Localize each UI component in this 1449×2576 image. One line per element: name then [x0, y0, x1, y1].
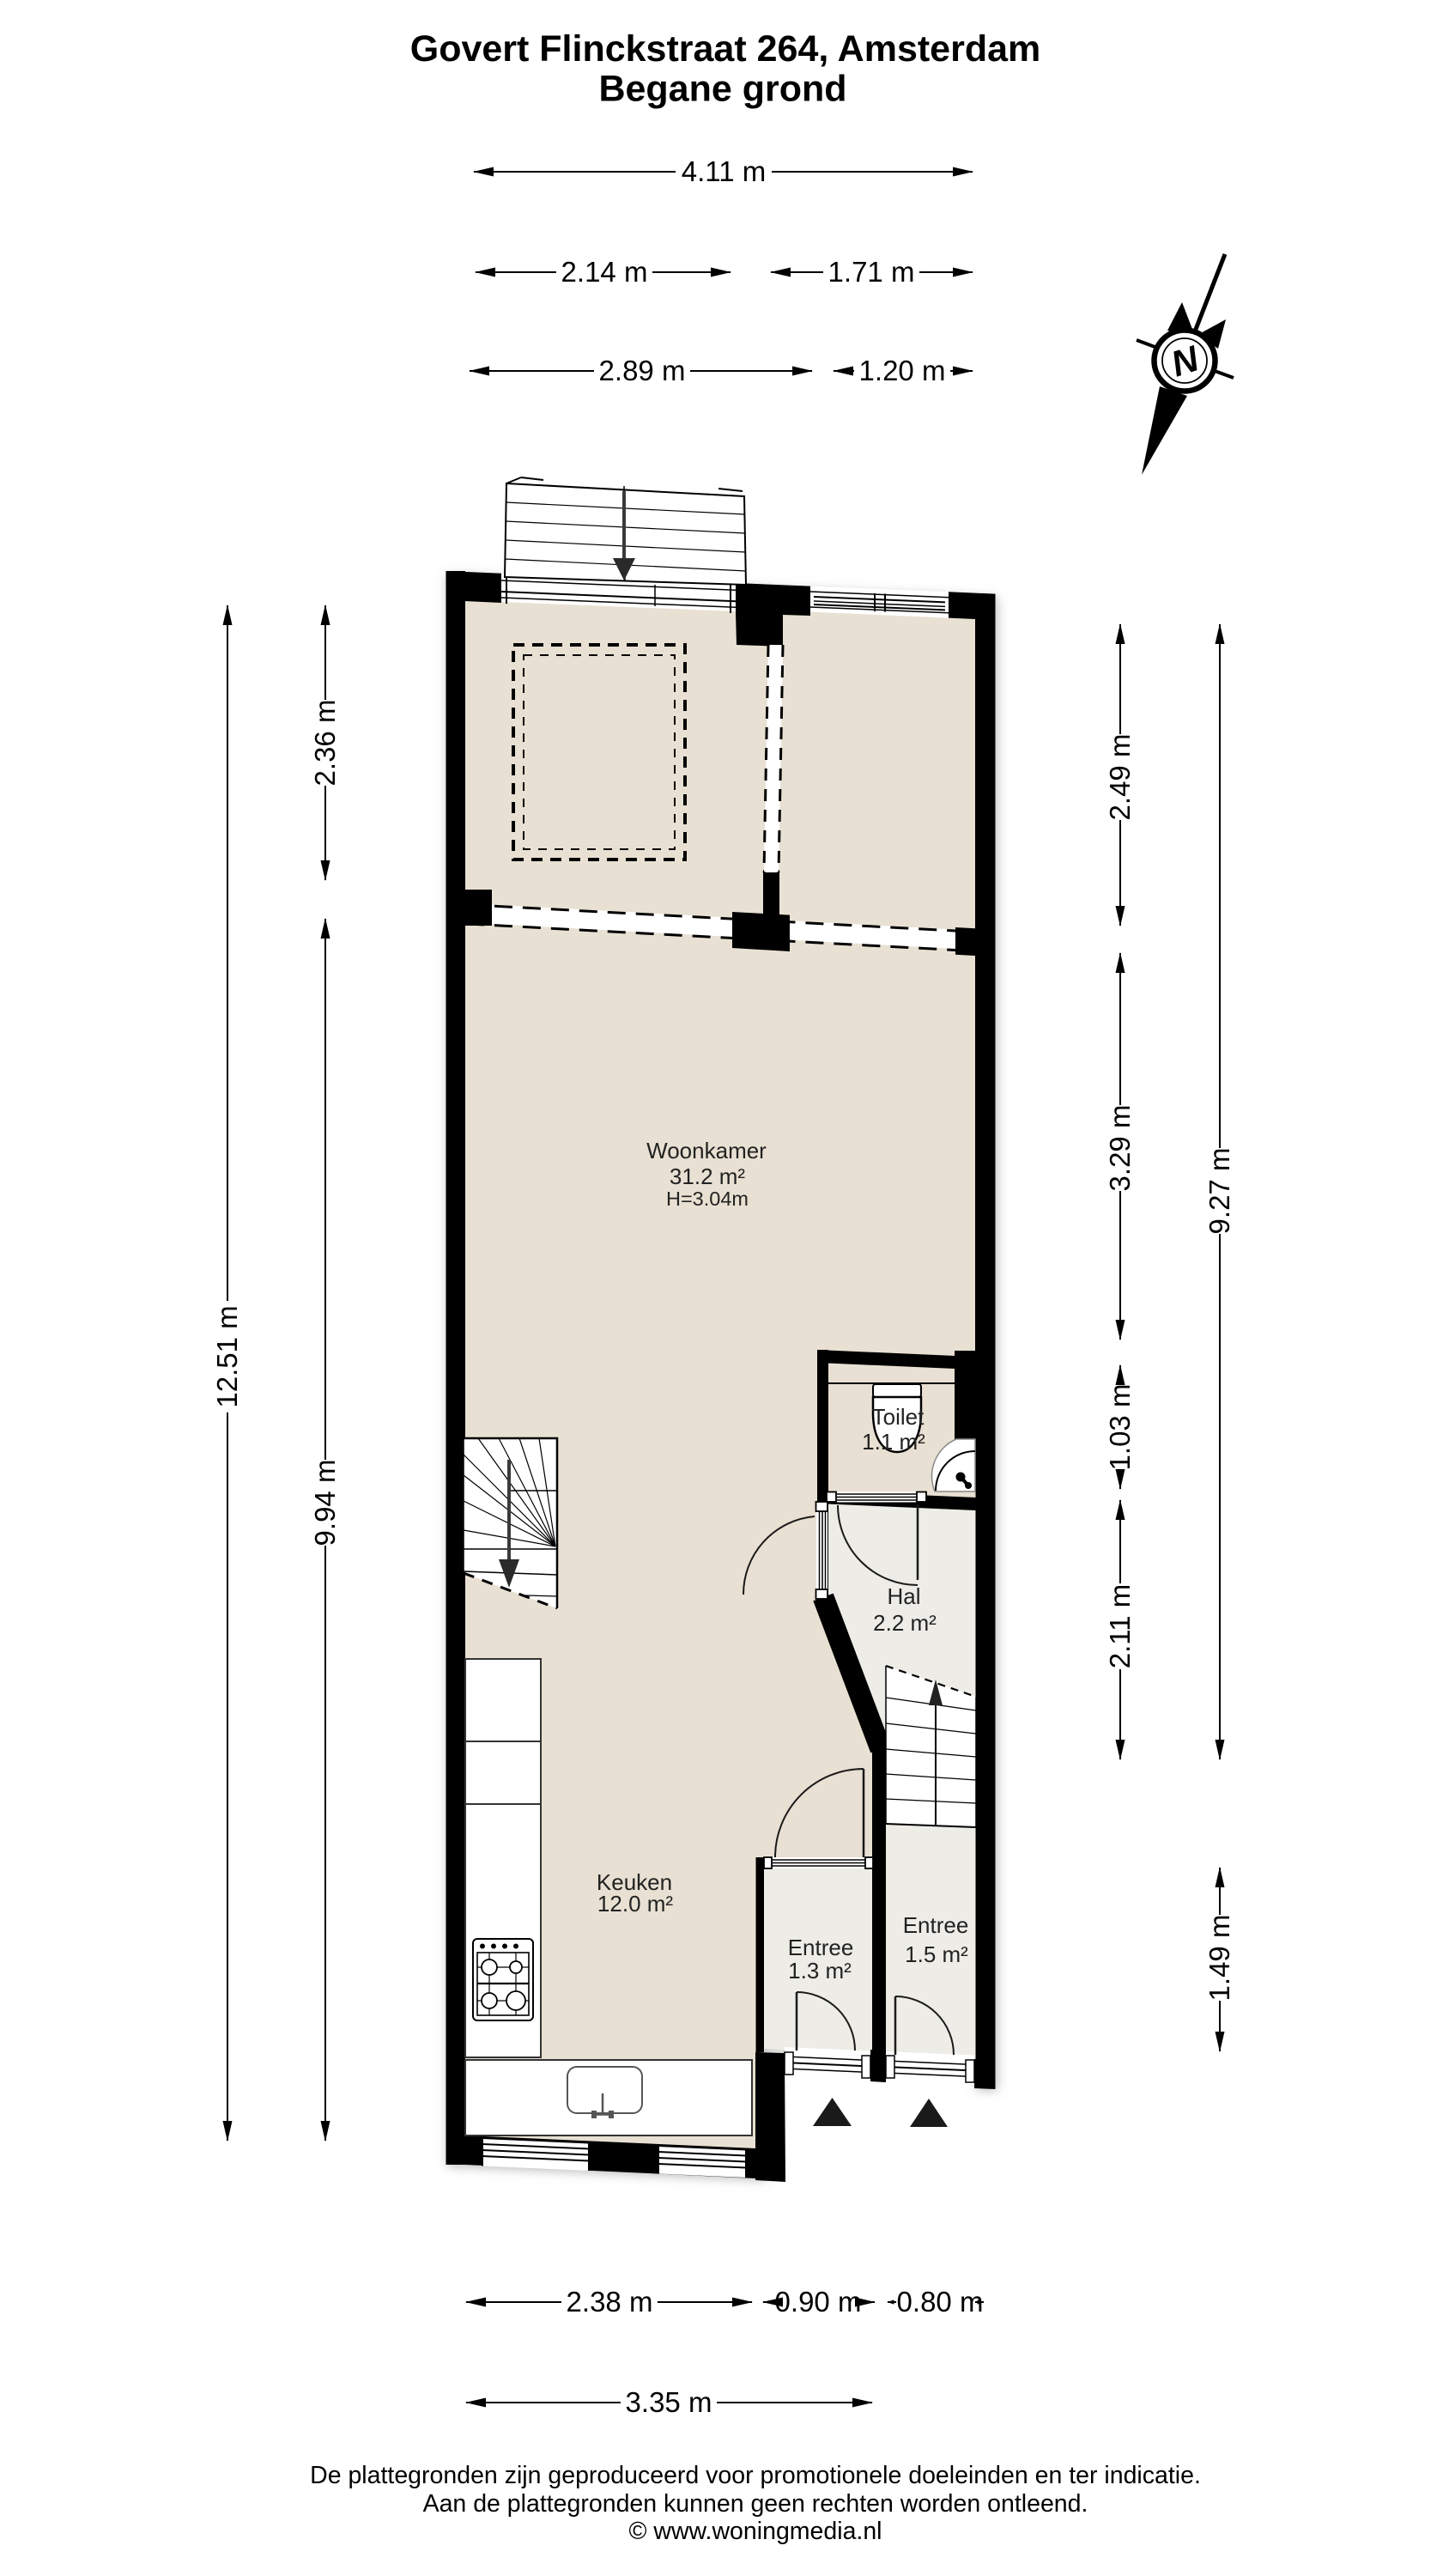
svg-text:4.11 m: 4.11 m: [682, 155, 766, 187]
svg-text:2.49 m: 2.49 m: [1104, 734, 1136, 821]
svg-text:2.14 m: 2.14 m: [561, 256, 648, 288]
svg-text:1.03 m: 1.03 m: [1104, 1384, 1136, 1471]
svg-text:0.80 m: 0.80 m: [897, 2286, 984, 2318]
svg-text:De plattegronden zijn geproduc: De plattegronden zijn geproduceerd voor …: [310, 2462, 1201, 2489]
svg-text:Begane grond: Begane grond: [598, 69, 846, 110]
svg-text:12.51 m: 12.51 m: [211, 1305, 243, 1407]
svg-text:1.20 m: 1.20 m: [859, 355, 946, 386]
svg-text:31.2 m²: 31.2 m²: [670, 1163, 745, 1189]
svg-text:© www.woningmedia.nl: © www.woningmedia.nl: [628, 2518, 882, 2545]
svg-text:1.5 m²: 1.5 m²: [905, 1941, 968, 1967]
svg-text:Entree: Entree: [903, 1912, 969, 1938]
svg-text:1.3 m²: 1.3 m²: [788, 1958, 852, 1984]
svg-text:2.2 m²: 2.2 m²: [873, 1610, 937, 1636]
svg-text:2.38 m: 2.38 m: [567, 2286, 653, 2318]
svg-text:9.94 m: 9.94 m: [309, 1460, 341, 1546]
svg-text:2.36 m: 2.36 m: [309, 700, 341, 787]
svg-text:3.29 m: 3.29 m: [1104, 1105, 1136, 1192]
svg-text:1.71 m: 1.71 m: [828, 256, 915, 288]
svg-text:H=3.04m: H=3.04m: [666, 1188, 749, 1210]
svg-text:Woonkamer: Woonkamer: [646, 1138, 767, 1163]
svg-text:Aan de plattegronden kunnen ge: Aan de plattegronden kunnen geen rechten…: [423, 2490, 1088, 2518]
svg-text:3.35 m: 3.35 m: [626, 2386, 712, 2418]
svg-text:9.27 m: 9.27 m: [1203, 1148, 1235, 1235]
svg-text:Hal: Hal: [887, 1583, 920, 1609]
svg-text:2.89 m: 2.89 m: [599, 355, 686, 386]
svg-text:0.90 m: 0.90 m: [775, 2286, 862, 2318]
svg-text:12.0 m²: 12.0 m²: [597, 1891, 673, 1917]
svg-text:Entree: Entree: [788, 1935, 854, 1960]
svg-text:Toilet: Toilet: [872, 1404, 925, 1430]
svg-text:Govert Flinckstraat 264, Amste: Govert Flinckstraat 264, Amsterdam: [410, 28, 1041, 70]
svg-text:1.49 m: 1.49 m: [1203, 1915, 1235, 2002]
svg-text:1.1 m²: 1.1 m²: [862, 1429, 925, 1455]
svg-text:2.11 m: 2.11 m: [1104, 1584, 1136, 1668]
